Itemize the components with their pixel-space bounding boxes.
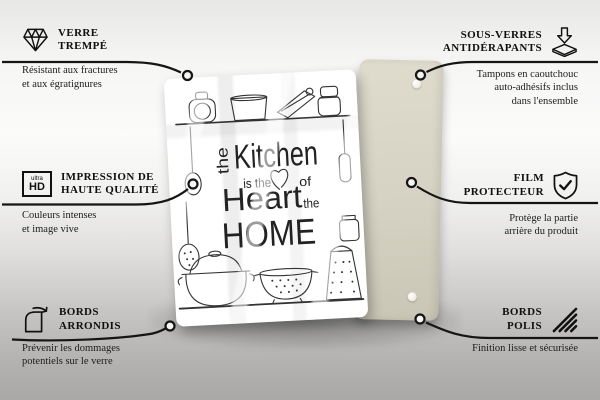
- ultra-hd-icon: ultra HD: [22, 171, 52, 197]
- callout-title-line: ANTIDÉRAPANTS: [443, 42, 542, 55]
- callout-protective-film: FILM PROTECTEUR Protège la partie arrièr…: [428, 171, 598, 239]
- callout-title-line: BORDS: [502, 306, 542, 319]
- callout-title-line: TREMPÉ: [58, 40, 107, 53]
- callout-desc-line: potentiels sur le verre: [22, 355, 172, 368]
- coaster-pads-icon: [551, 27, 578, 57]
- glass-panel: the Kitchen is the of Heart the HOME: [164, 69, 369, 327]
- diamond-icon: [22, 27, 49, 53]
- callout-print-quality: ultra HD IMPRESSION DE HAUTE QUALITÉ Cou…: [2, 171, 172, 236]
- callout-antislip-pads: SOUS-VERRES ANTIDÉRAPANTS Tampons en cao…: [428, 27, 598, 108]
- callout-title-line: HAUTE QUALITÉ: [61, 184, 159, 197]
- shield-check-icon: [553, 171, 578, 200]
- glass-gloss: [164, 69, 369, 327]
- callout-title-line: PROTECTEUR: [464, 186, 544, 199]
- callout-polished-edges: BORDS POLIS Finition lisse et sécurisée: [428, 306, 598, 355]
- callout-title-line: FILM: [464, 172, 544, 185]
- callout-desc-line: dans l'ensemble: [428, 95, 578, 108]
- ultra-hd-icon-text-big: HD: [29, 182, 45, 193]
- callout-title-line: IMPRESSION DE: [61, 171, 159, 184]
- callout-title-line: VERRE: [58, 27, 107, 40]
- callout-desc-line: Prévenir les dommages: [22, 342, 172, 355]
- polished-edge-icon: [551, 306, 578, 333]
- callout-desc-line: et aux égratignures: [22, 78, 172, 91]
- callout-desc-line: auto-adhésifs inclus: [428, 81, 578, 94]
- callout-tempered-glass: VERRE TREMPÉ Résistant aux fractures et …: [2, 27, 172, 91]
- callout-title-line: BORDS: [59, 306, 121, 319]
- callout-desc-line: Protège la partie: [428, 212, 578, 225]
- callout-desc-line: Résistant aux fractures: [22, 64, 172, 77]
- callout-desc-line: arrière du produit: [428, 225, 578, 238]
- callout-desc-line: Tampons en caoutchouc: [428, 68, 578, 81]
- callout-desc-line: Couleurs intenses: [22, 209, 172, 222]
- callout-title-line: ARRONDIS: [59, 320, 121, 333]
- callout-title-line: SOUS-VERRES: [443, 29, 542, 42]
- product-infographic: the Kitchen is the of Heart the HOME: [0, 0, 600, 400]
- callout-desc-line: et image vive: [22, 223, 172, 236]
- callout-desc-line: Finition lisse et sécurisée: [428, 342, 578, 355]
- rubber-pad: [412, 79, 421, 88]
- rubber-pad: [408, 292, 417, 301]
- callout-title-line: POLIS: [502, 320, 542, 333]
- callout-rounded-edges: BORDS ARRONDIS Prévenir les dommages pot…: [2, 306, 172, 369]
- rounded-corner-icon: [22, 306, 50, 333]
